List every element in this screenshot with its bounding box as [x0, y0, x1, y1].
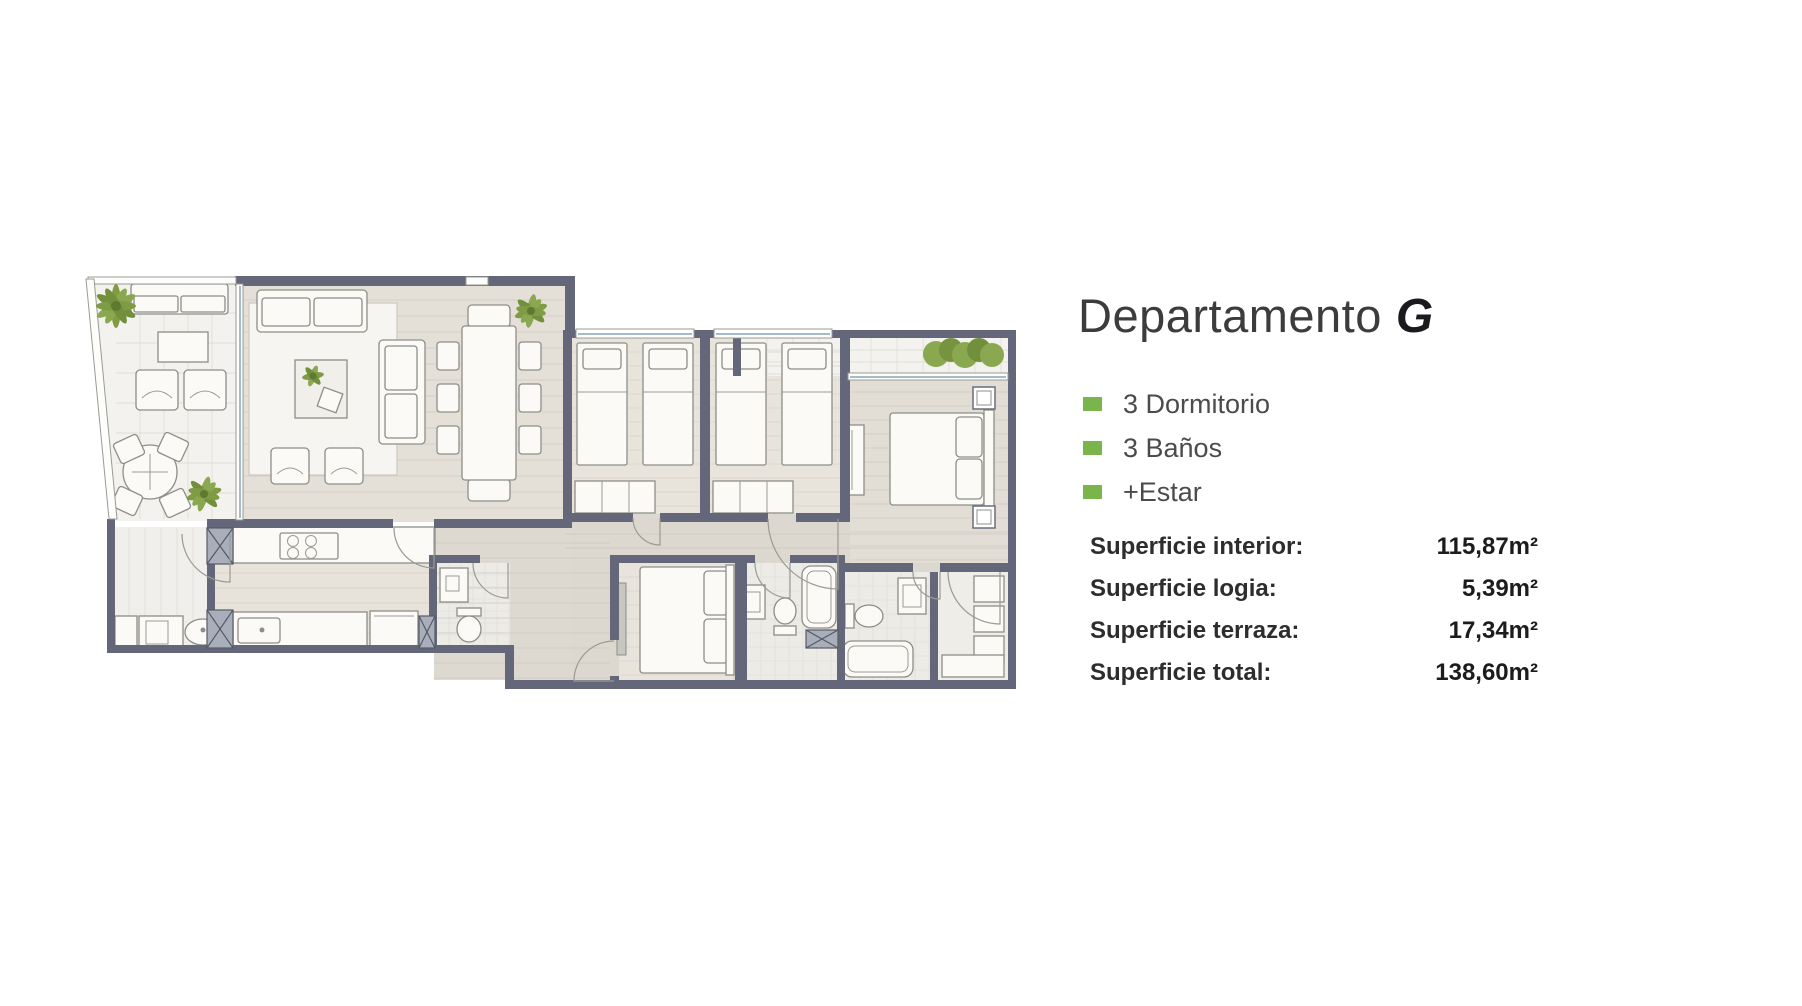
feature-item: +Estar [1083, 478, 1270, 506]
surface-row: Superficie total: 138,60m² [1090, 652, 1538, 694]
wardrobe [713, 481, 793, 513]
bullet-square-icon [1083, 441, 1102, 455]
cabinet [115, 616, 137, 649]
surface-row: Superficie interior: 115,87m² [1090, 526, 1538, 568]
shower [440, 568, 468, 602]
surface-value: 115,87m² [1437, 533, 1538, 561]
kitchen-sink [238, 618, 280, 643]
armchair [325, 448, 363, 484]
dining-chair [519, 342, 541, 370]
surface-row: Superficie terraza: 17,34m² [1090, 610, 1538, 652]
dining-chair [468, 305, 510, 327]
bathroom-sink [898, 578, 926, 614]
dining-chair [519, 426, 541, 454]
outdoor-chair [136, 370, 178, 410]
laundry [115, 616, 221, 649]
surface-label: Superficie terraza: [1090, 617, 1299, 645]
toilet [774, 598, 796, 624]
floor-plan [0, 0, 1802, 1006]
surface-value: 17,34m² [1449, 617, 1538, 645]
outdoor-chair [184, 370, 226, 410]
dining-chair [468, 479, 510, 501]
wardrobe [575, 481, 655, 513]
headboard [984, 410, 994, 508]
surface-row: Superficie logia: 5,39m² [1090, 568, 1538, 610]
surface-value: 138,60m² [1435, 659, 1538, 687]
feature-list: 3 Dormitorio 3 Baños +Estar [1083, 390, 1270, 506]
surface-table: Superficie interior: 115,87m² Superficie… [1090, 526, 1538, 694]
coffee-table [295, 360, 347, 418]
armchair [271, 448, 309, 484]
terrace-balustrade [88, 277, 236, 284]
page-title: DepartamentoG [1078, 292, 1434, 341]
dining-chair [519, 384, 541, 412]
surface-label: Superficie logia: [1090, 575, 1277, 603]
toilet-tank [774, 626, 796, 635]
bullet-square-icon [1083, 397, 1102, 411]
surface-value: 5,39m² [1462, 575, 1538, 603]
dining-table [462, 326, 516, 480]
dining-chair [437, 384, 459, 412]
toilet-tank [845, 604, 854, 628]
toilet [457, 616, 481, 642]
page: DepartamentoG 3 Dormitorio 3 Baños +Esta… [0, 0, 1802, 1006]
shelf [942, 655, 1004, 677]
title-unit-letter: G [1396, 290, 1434, 343]
feature-label: 3 Baños [1123, 435, 1222, 462]
feature-item: 3 Dormitorio [1083, 390, 1270, 418]
surface-label: Superficie total: [1090, 659, 1271, 687]
toilet-tank [457, 608, 481, 616]
dining-chair [437, 342, 459, 370]
refrigerator [370, 611, 418, 648]
title-main: Departamento [1078, 289, 1382, 342]
window-line [466, 277, 488, 285]
feature-item: 3 Baños [1083, 434, 1270, 462]
outdoor-coffee-table [158, 332, 208, 362]
dining-chair [437, 426, 459, 454]
feature-label: 3 Dormitorio [1123, 391, 1270, 418]
headboard [726, 565, 734, 675]
bullet-square-icon [1083, 485, 1102, 499]
wall-grille [973, 387, 995, 409]
wall-grille [973, 506, 995, 528]
surface-label: Superficie interior: [1090, 533, 1303, 561]
toilet [855, 605, 883, 627]
feature-label: +Estar [1123, 479, 1202, 506]
